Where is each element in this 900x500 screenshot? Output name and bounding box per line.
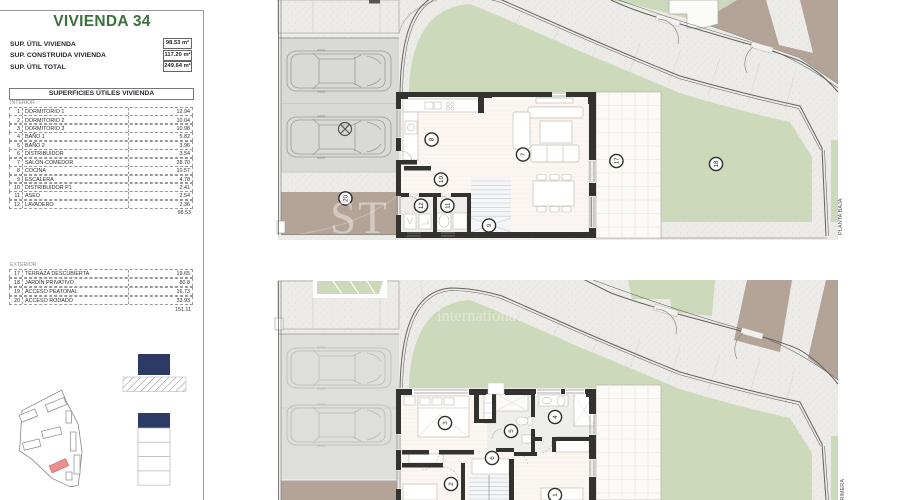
svg-text:PLANTA BAJA: PLANTA BAJA bbox=[838, 198, 844, 235]
svg-text:PLANTA PRIMERA: PLANTA PRIMERA bbox=[840, 479, 846, 500]
svg-text:9: 9 bbox=[486, 223, 493, 227]
svg-text:10: 10 bbox=[438, 176, 445, 183]
svg-text:17: 17 bbox=[614, 157, 621, 164]
svg-text:8: 8 bbox=[429, 137, 436, 141]
svg-text:6: 6 bbox=[489, 456, 496, 460]
svg-text:5: 5 bbox=[508, 429, 515, 433]
svg-text:7: 7 bbox=[520, 152, 527, 156]
svg-text:11: 11 bbox=[445, 202, 452, 209]
svg-text:ST: ST bbox=[330, 192, 389, 244]
svg-text:3: 3 bbox=[442, 421, 449, 425]
svg-text:4: 4 bbox=[552, 415, 559, 419]
svg-text:internationa: internationa bbox=[437, 306, 516, 325]
svg-text:2: 2 bbox=[448, 482, 455, 486]
svg-text:12: 12 bbox=[418, 202, 425, 209]
svg-text:1: 1 bbox=[552, 493, 559, 497]
svg-text:18: 18 bbox=[713, 160, 720, 167]
